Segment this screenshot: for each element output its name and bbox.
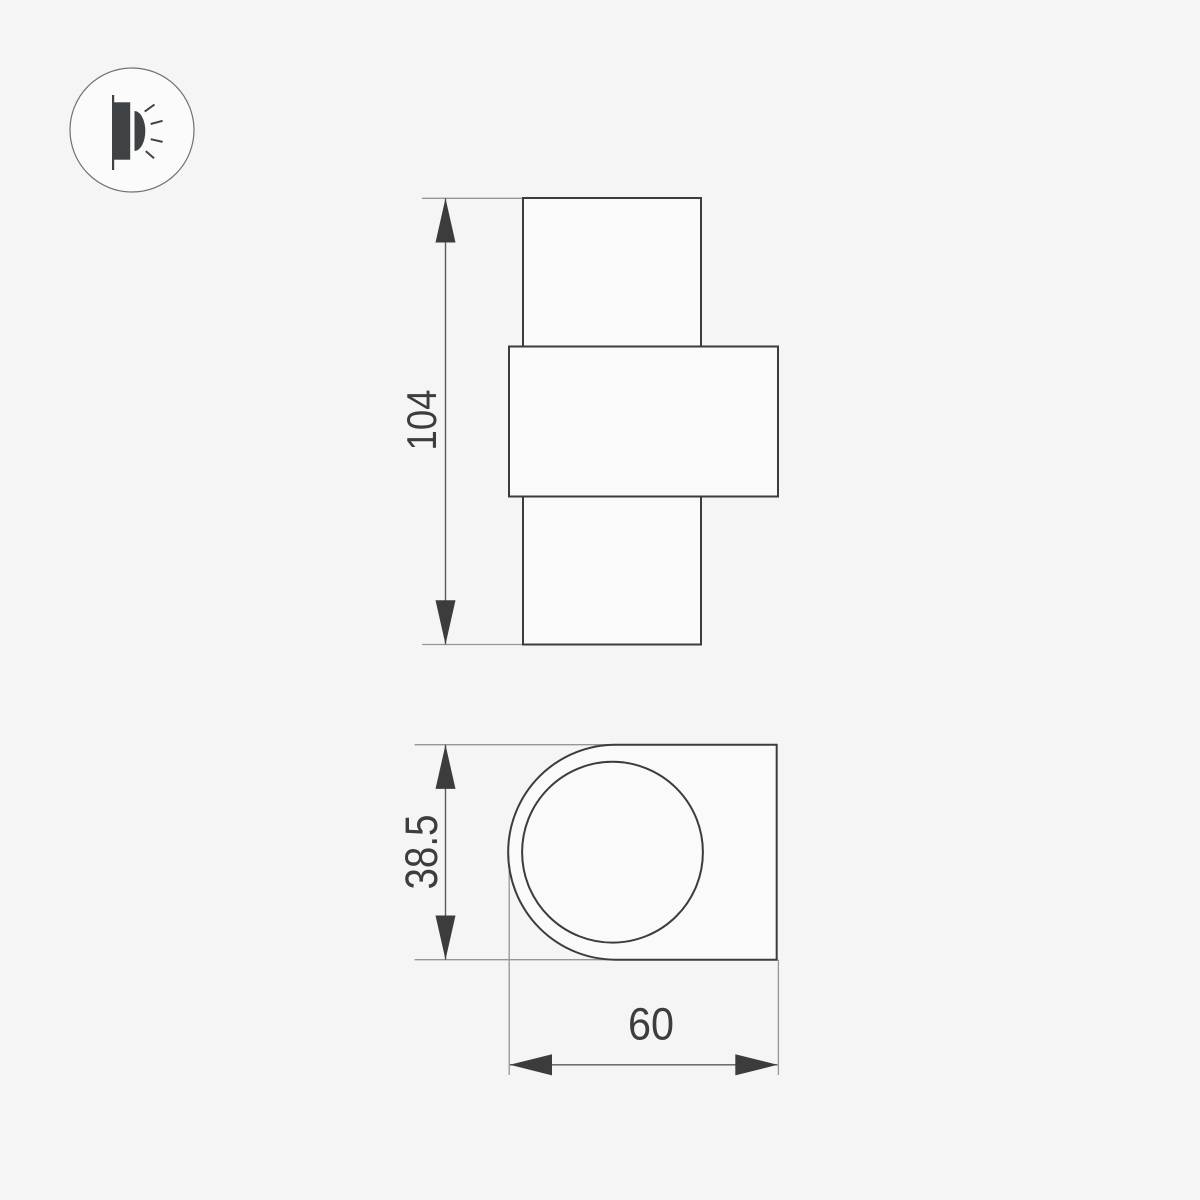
svg-text:38.5: 38.5 [396,815,447,890]
svg-text:60: 60 [628,999,674,1050]
svg-text:104: 104 [398,390,445,451]
